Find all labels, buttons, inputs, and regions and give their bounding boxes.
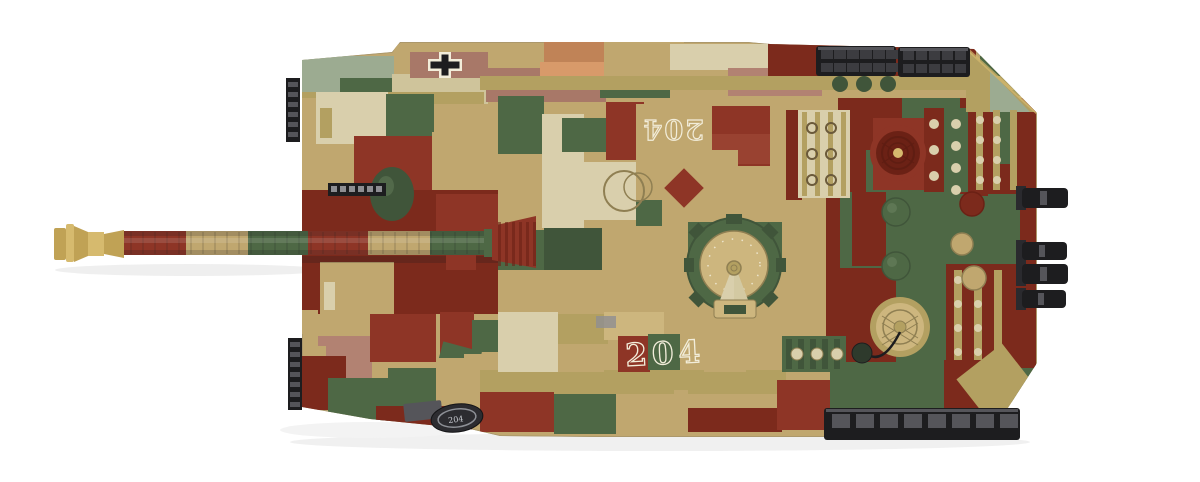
shape-r: [942, 64, 953, 73]
shape-c: [894, 321, 906, 333]
shape-r: [821, 63, 833, 72]
shape-r: [498, 270, 708, 314]
shape-c: [954, 324, 962, 332]
shape-r: [288, 102, 298, 107]
muzzle-brake: [74, 226, 88, 262]
muzzle-brake: [54, 228, 66, 260]
shape-r: [860, 50, 872, 59]
tactical-number-bottom: 204: [625, 334, 706, 374]
shape-r: [886, 63, 898, 72]
deck-stud: [880, 76, 896, 92]
shape-r: [818, 47, 894, 50]
shape-r: [488, 44, 546, 68]
shape-r: [929, 64, 940, 73]
shape-c: [974, 324, 982, 332]
shape-r: [726, 214, 742, 224]
shape-r: [562, 118, 608, 152]
shape-r: [955, 51, 966, 60]
exhausts: [1016, 186, 1068, 310]
shape-r: [512, 222, 515, 266]
shape-r: [290, 362, 300, 367]
shape-r: [290, 372, 300, 377]
shape-r: [288, 92, 298, 97]
shape-r: [880, 414, 898, 428]
shape-r: [856, 414, 874, 428]
muzzle-brake: [88, 232, 104, 256]
shape-r: [848, 110, 866, 192]
shape-r: [288, 82, 298, 87]
shape-r: [976, 414, 994, 428]
shape-c: [791, 348, 803, 360]
shape-r: [873, 63, 885, 72]
shape-r: [290, 342, 300, 347]
shape-r: [821, 50, 833, 59]
shape-r: [724, 305, 746, 314]
shape-r: [916, 51, 927, 60]
shape-r: [903, 64, 914, 73]
shape-r: [860, 63, 872, 72]
shape-r: [432, 132, 500, 196]
muzzle-brake: [66, 224, 74, 262]
shape-r: [1039, 245, 1045, 257]
shape-r: [296, 310, 318, 334]
deck-stud: [832, 76, 848, 92]
deck-stud: [856, 76, 872, 92]
barrel-shadow: [55, 264, 325, 276]
shape-r: [832, 414, 850, 428]
shape-r: [952, 414, 970, 428]
shape-r: [386, 94, 434, 140]
shape-r: [505, 222, 508, 266]
shape-r: [349, 186, 355, 192]
shape-r: [988, 194, 1020, 262]
shape-r: [331, 186, 337, 192]
shape-c: [887, 203, 897, 213]
shape-r: [841, 112, 846, 196]
shape-r: [1040, 191, 1047, 205]
deck-stud: [951, 233, 973, 255]
shape-r: [955, 64, 966, 73]
shape-r: [596, 316, 616, 328]
shape-c: [954, 276, 962, 284]
shape-c: [727, 261, 741, 275]
hatch-handle: [324, 282, 335, 310]
shape-c: [954, 348, 962, 356]
shape-r: [670, 44, 776, 72]
shape-r: [519, 222, 522, 266]
shape-r: [288, 132, 298, 137]
shape-r: [358, 186, 364, 192]
shape-r: [376, 186, 382, 192]
shape-r: [288, 122, 298, 127]
shape-r: [480, 392, 554, 432]
shape-r: [826, 409, 1018, 412]
shape-r: [900, 48, 968, 51]
shape-c: [976, 176, 984, 184]
deck-stud: [852, 343, 872, 363]
shape-r: [526, 222, 529, 266]
shape-c: [951, 119, 961, 129]
shape-r: [686, 408, 782, 432]
shape-r: [367, 186, 373, 192]
shape-r: [288, 112, 298, 117]
shape-r: [886, 50, 898, 59]
shape-r: [1038, 293, 1044, 305]
grille-slat: [994, 270, 1002, 360]
shape-r: [124, 250, 492, 255]
shape-r: [916, 64, 927, 73]
shape-c: [976, 116, 984, 124]
shape-r: [834, 50, 846, 59]
deck-stud: [960, 192, 984, 216]
muzzle-brake: [104, 230, 124, 258]
shape-r: [602, 222, 660, 272]
shape-c: [929, 171, 939, 181]
shape-r: [928, 414, 946, 428]
shape-r: [904, 414, 922, 428]
shape-r: [498, 96, 544, 154]
shape-c: [974, 300, 982, 308]
shape-r: [776, 258, 786, 272]
deck-stud: [882, 252, 910, 280]
shape-c: [887, 257, 897, 267]
copper-brick: [544, 40, 604, 64]
shape-c: [811, 348, 823, 360]
shape-r: [674, 390, 688, 434]
shape-r: [290, 392, 300, 397]
shape-r: [1040, 267, 1047, 281]
shape-c: [954, 300, 962, 308]
shape-r: [370, 314, 436, 362]
shape-c: [951, 163, 961, 173]
shape-c: [831, 348, 843, 360]
shape-r: [124, 238, 492, 243]
deck-stud: [962, 266, 986, 290]
shape-r: [533, 222, 536, 266]
shape-r: [852, 192, 886, 266]
shape-r: [498, 312, 558, 372]
product-photo-brick-tank-top-view: 204204204: [40, 16, 1200, 466]
shape-r: [903, 51, 914, 60]
shape-c: [993, 116, 1001, 124]
shape-r: [554, 394, 616, 434]
shape-c: [993, 156, 1001, 164]
shape-r: [340, 186, 346, 192]
shape-r: [929, 51, 940, 60]
shape-c: [951, 141, 961, 151]
tactical-number-top: 204: [642, 113, 704, 144]
shape-c: [929, 119, 939, 129]
grille-slat: [1010, 110, 1017, 190]
shape-r: [124, 231, 492, 236]
shape-r: [830, 372, 878, 410]
shape-r: [847, 63, 859, 72]
hatch-handle: [320, 108, 332, 138]
road-wheel-badge: 204: [448, 414, 464, 425]
shape-r: [684, 258, 694, 272]
shape-c: [976, 156, 984, 164]
shape-c: [993, 136, 1001, 144]
shape-r: [290, 352, 300, 357]
tank-model-svg: 204204204: [40, 16, 1200, 466]
shape-r: [616, 396, 674, 434]
shape-c: [893, 148, 903, 158]
shape-c: [929, 145, 939, 155]
shape-c: [993, 176, 1001, 184]
shape-r: [290, 402, 300, 407]
sponson-rail: [480, 76, 1034, 90]
shape-r: [498, 222, 501, 266]
shape-r: [544, 228, 604, 274]
shape-r: [942, 51, 953, 60]
shape-r: [873, 50, 885, 59]
shape-r: [290, 382, 300, 387]
shape-r: [834, 63, 846, 72]
shape-c: [951, 185, 961, 195]
shape-r: [1000, 414, 1018, 428]
deck-stud: [882, 198, 910, 226]
shape-c: [974, 348, 982, 356]
shape-c: [976, 136, 984, 144]
shape-r: [558, 344, 604, 372]
shape-r: [847, 50, 859, 59]
